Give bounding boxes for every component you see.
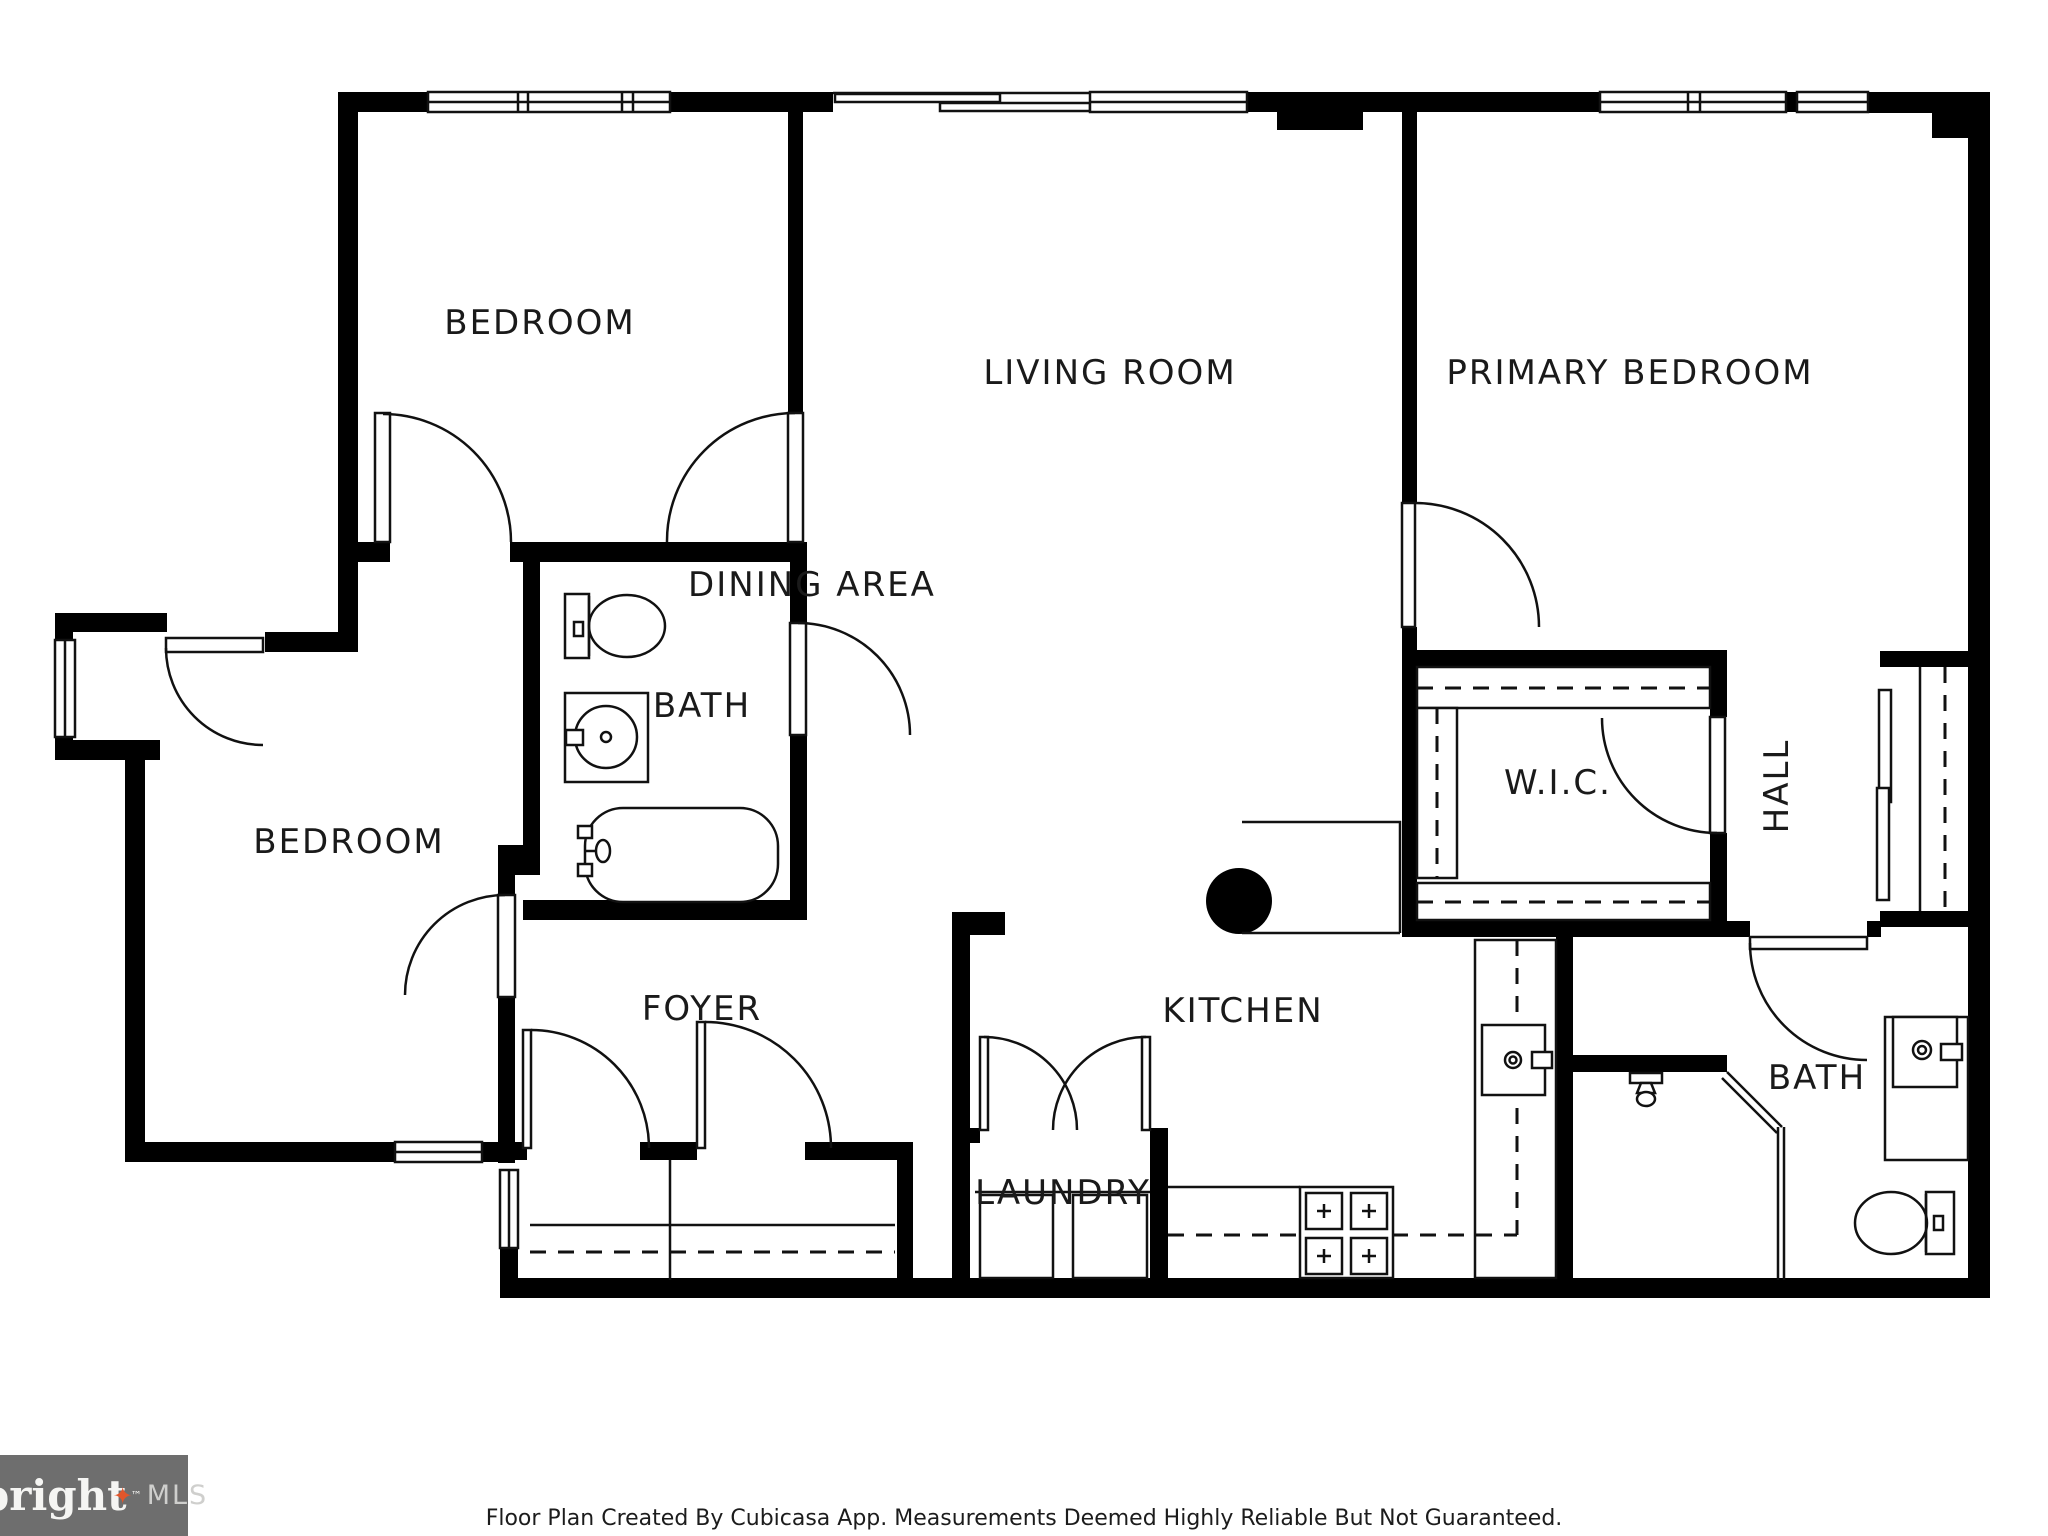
logo-tm-mark: ™ bbox=[131, 1489, 142, 1502]
shower-icon bbox=[1630, 1072, 1784, 1280]
floor-plan-page: BEDROOM LIVING ROOM PRIMARY BEDROOM BATH… bbox=[0, 0, 2048, 1536]
door-bedroom2 bbox=[405, 895, 515, 997]
room-label-kitchen: KITCHEN bbox=[1162, 991, 1323, 1031]
toilet-icon bbox=[565, 594, 665, 658]
hall-closet-sliding bbox=[1877, 667, 1945, 911]
bathtub-icon bbox=[578, 808, 778, 902]
room-label-living-room: LIVING ROOM bbox=[983, 353, 1236, 393]
room-label-primary-bedroom: PRIMARY BEDROOM bbox=[1446, 353, 1813, 393]
disclaimer-text: Floor Plan Created By Cubicasa App. Meas… bbox=[0, 1506, 2048, 1531]
door-bedroom1-right bbox=[667, 413, 803, 542]
door-bedroom1-left bbox=[375, 413, 511, 542]
water-heater-icon bbox=[1206, 822, 1400, 934]
door-wic bbox=[1602, 717, 1725, 833]
room-label-laundry: LAUNDRY bbox=[975, 1173, 1151, 1213]
room-label-foyer: FOYER bbox=[642, 989, 762, 1029]
door-bath2 bbox=[1750, 937, 1867, 1060]
logo-mls-text: MLS bbox=[147, 1480, 208, 1511]
door-laundry-double bbox=[980, 1037, 1150, 1130]
logo-star-icon: ✦ bbox=[113, 1482, 133, 1510]
bright-mls-logo: bright✦™MLS bbox=[0, 1455, 188, 1536]
window-closet-west bbox=[500, 1170, 518, 1248]
room-label-dining-area: DINING AREA bbox=[688, 565, 936, 605]
window-bedroom-niche bbox=[55, 640, 75, 737]
sliding-door-living-room-top bbox=[833, 92, 1247, 112]
room-label-wic: W.I.C. bbox=[1504, 763, 1612, 803]
room-label-bedroom-2: BEDROOM bbox=[253, 822, 444, 862]
room-label-hall: HALL bbox=[1757, 739, 1797, 834]
room-label-bath-2: BATH bbox=[1768, 1058, 1866, 1098]
window-primary-bedroom bbox=[1600, 92, 1868, 112]
room-label-bath-1: BATH bbox=[653, 686, 751, 726]
room-label-bedroom-1: BEDROOM bbox=[444, 303, 635, 343]
kitchen-sink-icon bbox=[1482, 1025, 1552, 1095]
toilet-2-icon bbox=[1855, 1192, 1954, 1254]
window-bedroom-bottom bbox=[395, 1142, 482, 1162]
door-foyer-closet-left bbox=[523, 1030, 649, 1148]
door-foyer-closet-right bbox=[697, 1022, 831, 1148]
door-primary-bedroom bbox=[1402, 503, 1539, 627]
stove-icon bbox=[1300, 1187, 1393, 1278]
logo-brand-text: bright bbox=[0, 1475, 127, 1517]
foyer-closet-shelves bbox=[530, 1160, 895, 1280]
floor-plan-drawing: BEDROOM LIVING ROOM PRIMARY BEDROOM BATH… bbox=[0, 0, 2048, 1536]
sink-icon bbox=[565, 693, 648, 782]
vanity-sink-icon bbox=[1885, 1017, 1968, 1160]
door-bedroom2-niche bbox=[166, 638, 263, 745]
window-bedroom-top bbox=[428, 92, 670, 112]
door-bath-middle bbox=[790, 623, 910, 735]
